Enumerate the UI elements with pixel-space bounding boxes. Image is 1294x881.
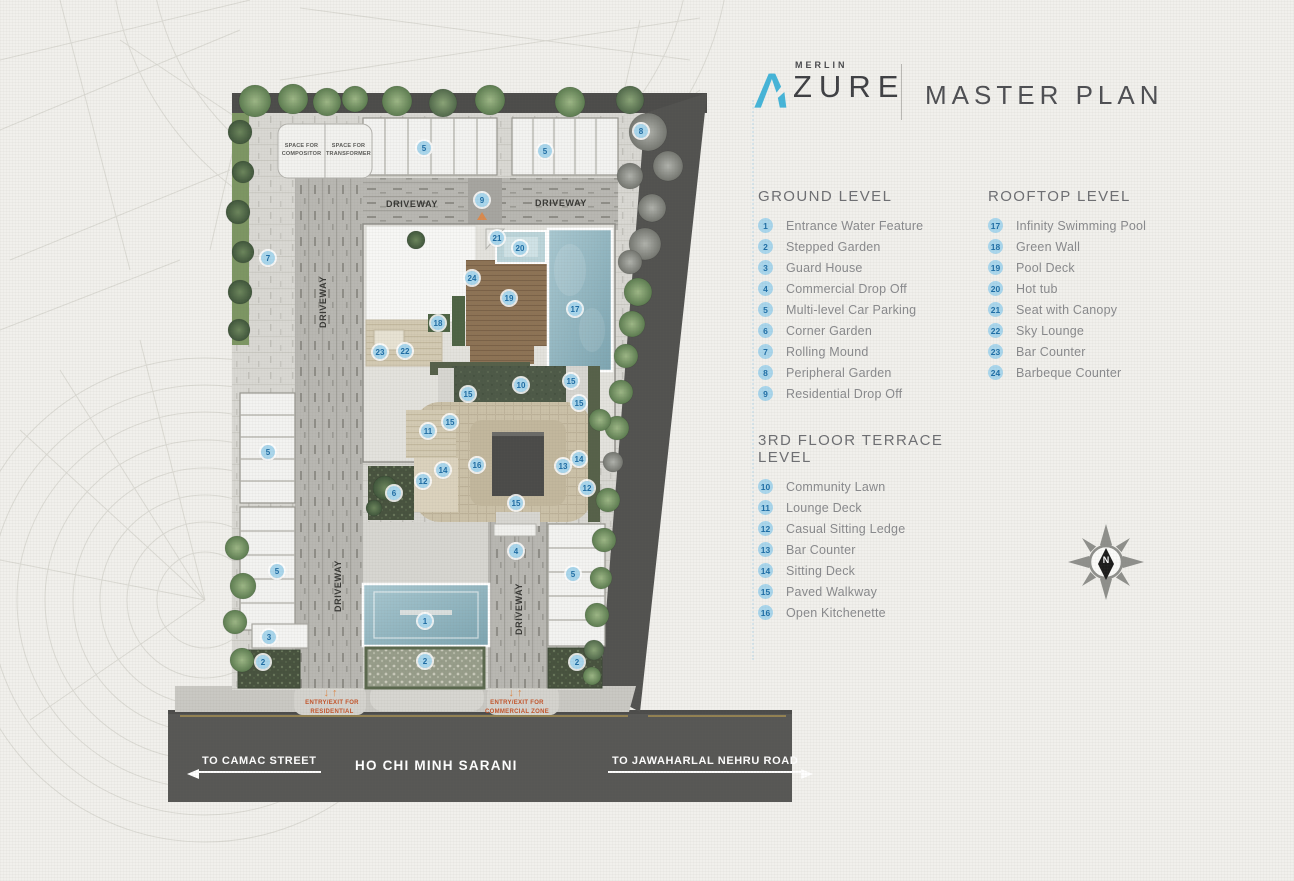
space-for-transformer-label: SPACE FOR TRANSFORMER — [326, 127, 371, 177]
legend-item-8: 8Peripheral Garden — [758, 365, 988, 380]
right-arrow-icon — [801, 769, 813, 779]
legend-item-label: Entrance Water Feature — [786, 219, 923, 233]
ground-south — [363, 522, 605, 688]
compass-north-label: N — [1103, 555, 1110, 565]
stepped-garden-center — [366, 648, 484, 688]
legend-number-badge: 3 — [758, 260, 773, 275]
legend-number-badge: 21 — [988, 302, 1003, 317]
legend-number-badge: 24 — [988, 365, 1003, 380]
legend-item-label: Bar Counter — [786, 543, 856, 557]
legend-item-label: Lounge Deck — [786, 501, 862, 515]
legend-number-badge: 14 — [758, 563, 773, 578]
legend-item-3: 3Guard House — [758, 260, 988, 275]
master-plan-page: MERLIN ZURE MASTER PLAN GROUND LEVEL 1En… — [0, 0, 1294, 881]
lounge-deck — [406, 410, 456, 458]
legend-item-label: Sky Lounge — [1016, 324, 1084, 338]
legend-item-label: Pool Deck — [1016, 261, 1075, 275]
legend-item-label: Casual Sitting Ledge — [786, 522, 905, 536]
legend-number-badge: 2 — [758, 239, 773, 254]
legend-item-7: 7Rolling Mound — [758, 344, 988, 359]
brand-azure: ZURE — [793, 71, 905, 102]
legend-number-badge: 16 — [758, 605, 773, 620]
legend-terrace-title: 3RD FLOOR TERRACE LEVEL — [758, 432, 988, 466]
legend-number-badge: 7 — [758, 344, 773, 359]
legend-item-label: Hot tub — [1016, 282, 1058, 296]
legend-item-label: Multi-level Car Parking — [786, 303, 916, 317]
legend-number-badge: 22 — [988, 323, 1003, 338]
legend-number-badge: 1 — [758, 218, 773, 233]
pool-deck — [466, 260, 550, 346]
guard-house — [252, 624, 308, 648]
legend-item-6: 6Corner Garden — [758, 323, 988, 338]
legend-number-badge: 5 — [758, 302, 773, 317]
legend-item-label: Rolling Mound — [786, 345, 869, 359]
legend-item-9: 9Residential Drop Off — [758, 386, 988, 401]
legend-item-20: 20Hot tub — [988, 281, 1218, 296]
legend-item-label: Peripheral Garden — [786, 366, 892, 380]
legend-item-label: Bar Counter — [1016, 345, 1086, 359]
legend-item-21: 21Seat with Canopy — [988, 302, 1218, 317]
legend-item-4: 4Commercial Drop Off — [758, 281, 988, 296]
left-arrow-icon — [187, 769, 199, 779]
legend-item-1: 1Entrance Water Feature — [758, 218, 988, 233]
legend-item-15: 15Paved Walkway — [758, 584, 988, 599]
legend-item-18: 18Green Wall — [988, 239, 1218, 254]
legend-ground-title: GROUND LEVEL — [758, 188, 988, 205]
parking-top — [363, 118, 618, 175]
legend-rooftop-level: ROOFTOP LEVEL 17Infinity Swimming Pool18… — [988, 188, 1218, 386]
camac-street-label: TO CAMAC STREET — [198, 755, 321, 773]
road-name: HO CHI MINH SARANI — [355, 758, 518, 773]
page-title: MASTER PLAN — [925, 80, 1164, 111]
drop-off-canopy — [494, 524, 536, 536]
community-lawn — [452, 366, 568, 408]
legend-item-label: Stepped Garden — [786, 240, 881, 254]
legend-item-2: 2Stepped Garden — [758, 239, 988, 254]
green-wall — [452, 296, 465, 346]
legend-terrace-items: 10Community Lawn11Lounge Deck12Casual Si… — [758, 479, 988, 620]
legend-number-badge: 13 — [758, 542, 773, 557]
legend-number-badge: 9 — [758, 386, 773, 401]
legend-item-24: 24Barbeque Counter — [988, 365, 1218, 380]
legend-number-badge: 17 — [988, 218, 1003, 233]
legend-item-11: 11Lounge Deck — [758, 500, 988, 515]
legend-item-12: 12Casual Sitting Ledge — [758, 521, 988, 536]
legend-item-16: 16Open Kitchenette — [758, 605, 988, 620]
legend-item-14: 14Sitting Deck — [758, 563, 988, 578]
legend-number-badge: 11 — [758, 500, 773, 515]
legend-rooftop-items: 17Infinity Swimming Pool18Green Wall19Po… — [988, 218, 1218, 380]
legend-item-13: 13Bar Counter — [758, 542, 988, 557]
legend-rooftop-title: ROOFTOP LEVEL — [988, 188, 1218, 205]
sitting-deck — [414, 458, 458, 512]
legend-number-badge: 15 — [758, 584, 773, 599]
legend-number-badge: 20 — [988, 281, 1003, 296]
legend-number-badge: 19 — [988, 260, 1003, 275]
legend-number-badge: 12 — [758, 521, 773, 536]
legend-item-5: 5Multi-level Car Parking — [758, 302, 988, 317]
direction-camac-street: TO CAMAC STREET — [198, 755, 321, 773]
legend-item-19: 19Pool Deck — [988, 260, 1218, 275]
legend-item-label: Sitting Deck — [786, 564, 855, 578]
legend-number-badge: 18 — [988, 239, 1003, 254]
plan-edge-dotted-line — [752, 100, 754, 660]
legend-item-10: 10Community Lawn — [758, 479, 988, 494]
legend-item-23: 23Bar Counter — [988, 344, 1218, 359]
direction-jawaharlal-nehru-road: TO JAWAHARLAL NEHRU ROAD — [608, 755, 802, 773]
rolling-mound-green-strip — [232, 113, 249, 345]
legend-item-label: Seat with Canopy — [1016, 303, 1117, 317]
site-plan-graphic — [0, 0, 1294, 881]
brand-text: MERLIN ZURE — [793, 60, 905, 102]
legend-item-label: Open Kitchenette — [786, 606, 886, 620]
legend-terrace-level: 3RD FLOOR TERRACE LEVEL 10Community Lawn… — [758, 432, 988, 626]
legend-item-label: Corner Garden — [786, 324, 872, 338]
legend-ground-level: GROUND LEVEL 1Entrance Water Feature2Ste… — [758, 188, 988, 407]
compass-rose: N — [1066, 522, 1146, 602]
legend-item-label: Infinity Swimming Pool — [1016, 219, 1146, 233]
legend-number-badge: 4 — [758, 281, 773, 296]
legend-item-label: Guard House — [786, 261, 863, 275]
bar-counter-rooftop — [374, 330, 404, 350]
space-for-compositor-label: SPACE FOR COMPOSITOR — [279, 127, 324, 177]
legend-item-22: 22Sky Lounge — [988, 323, 1218, 338]
legend-item-17: 17Infinity Swimming Pool — [988, 218, 1218, 233]
legend-item-label: Commercial Drop Off — [786, 282, 907, 296]
legend-item-label: Residential Drop Off — [786, 387, 902, 401]
legend-item-label: Barbeque Counter — [1016, 366, 1121, 380]
legend-number-badge: 23 — [988, 344, 1003, 359]
legend-item-label: Community Lawn — [786, 480, 885, 494]
legend-ground-items: 1Entrance Water Feature2Stepped Garden3G… — [758, 218, 988, 401]
azure-a-icon — [753, 64, 787, 116]
legend-item-label: Green Wall — [1016, 240, 1080, 254]
tower-core — [492, 432, 544, 496]
legend-number-badge: 10 — [758, 479, 773, 494]
legend-number-badge: 6 — [758, 323, 773, 338]
brand-logo: MERLIN ZURE — [753, 60, 905, 116]
legend-item-label: Paved Walkway — [786, 585, 877, 599]
nehru-road-label: TO JAWAHARLAL NEHRU ROAD — [608, 755, 802, 773]
header-divider — [901, 64, 902, 120]
legend-number-badge: 8 — [758, 365, 773, 380]
